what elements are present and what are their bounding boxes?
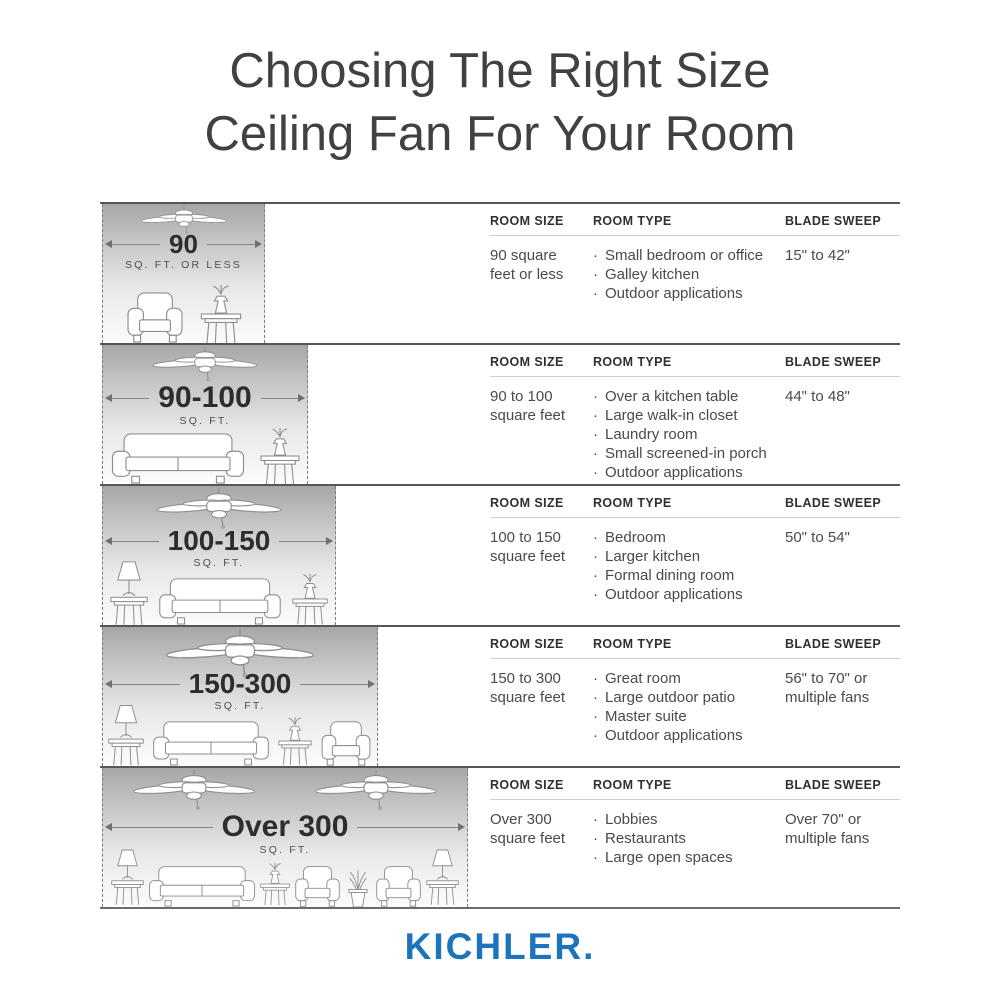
lamp-table-icon: [111, 847, 144, 907]
arrow-right-icon: [458, 823, 465, 831]
sofa-icon: [152, 720, 270, 766]
armchair-icon: [320, 720, 372, 766]
column-header-blade-sweep: BLADE SWEEP: [785, 355, 900, 369]
sofa-icon: [158, 577, 282, 625]
lamp-table-icon: [110, 561, 148, 625]
column-header-room-type: ROOM TYPE: [593, 637, 785, 651]
room-type-item: Formal dining room: [593, 566, 785, 585]
column-header-blade-sweep: BLADE SWEEP: [785, 496, 900, 510]
armchair-icon: [375, 865, 422, 907]
blade-sweep-value: Over 70" or multiple fans: [785, 810, 879, 867]
header-underline: [490, 799, 900, 800]
side-table-icon: [200, 285, 242, 343]
size-label: 90-100: [149, 383, 260, 413]
size-label: 100-150: [159, 527, 280, 555]
room-type-item: Outdoor applications: [593, 585, 785, 604]
arrow-right-icon: [368, 680, 375, 688]
room-type-item: Small bedroom or office: [593, 246, 785, 265]
side-table-icon: [278, 716, 312, 766]
arrow-right-icon: [255, 240, 262, 248]
column-header-room-type: ROOM TYPE: [593, 778, 785, 792]
column-header-room-size: ROOM SIZE: [490, 355, 593, 369]
arrow-left-icon: [105, 680, 112, 688]
room-size-value: 100 to 150 square feet: [490, 528, 584, 604]
width-arrow: 90-100: [103, 383, 307, 413]
ceiling-fan-icon: [130, 770, 258, 814]
column-header-room-type: ROOM TYPE: [593, 355, 785, 369]
ceiling-fan-icon: [312, 770, 440, 814]
room-type-item: Outdoor applications: [593, 463, 785, 482]
info-columns: ROOM SIZE ROOM TYPE BLADE SWEEP 90 squar…: [490, 204, 900, 303]
potted-plant-icon: [345, 869, 371, 907]
arrow-left-icon: [105, 240, 112, 248]
ceiling-fan-icon: [150, 347, 260, 385]
room-type-list: Over a kitchen table Large walk-in close…: [593, 387, 785, 482]
lamp-table-icon: [108, 704, 144, 766]
room-type-item: Master suite: [593, 707, 785, 726]
fan-size-table: 90 SQ. FT. OR LESS ROOM SIZE ROOM TYPE B…: [100, 202, 900, 909]
sofa-icon: [110, 432, 246, 484]
arrow-right-icon: [326, 537, 333, 545]
header-underline: [490, 376, 900, 377]
column-header-room-size: ROOM SIZE: [490, 214, 593, 228]
room-type-item: Great room: [593, 669, 785, 688]
sofa-icon: [148, 865, 256, 907]
column-header-room-size: ROOM SIZE: [490, 496, 593, 510]
room-type-item: Small screened-in porch: [593, 444, 785, 463]
arrow-left-icon: [105, 394, 112, 402]
room-illustration-150-300: 150-300 SQ. FT.: [102, 627, 378, 766]
page-title: Choosing The Right Size Ceiling Fan For …: [0, 0, 1000, 166]
room-illustration-90: 90 SQ. FT. OR LESS: [102, 204, 265, 343]
column-header-blade-sweep: BLADE SWEEP: [785, 778, 900, 792]
column-header-room-size: ROOM SIZE: [490, 637, 593, 651]
room-type-item: Outdoor applications: [593, 284, 785, 303]
armchair-icon: [294, 865, 341, 907]
page-title-line2: Ceiling Fan For Your Room: [0, 103, 1000, 166]
section-90-100-sqft: 90-100 SQ. FT. ROOM SIZE ROOM TYPE BLADE…: [100, 343, 900, 484]
size-label: 150-300: [180, 670, 301, 698]
room-type-item: Over a kitchen table: [593, 387, 785, 406]
arrow-right-icon: [298, 394, 305, 402]
column-header-room-size: ROOM SIZE: [490, 778, 593, 792]
info-columns: ROOM SIZE ROOM TYPE BLADE SWEEP 90 to 10…: [490, 345, 900, 482]
room-size-value: 90 to 100 square feet: [490, 387, 584, 482]
room-illustration-over-300: Over 300 SQ. FT.: [102, 768, 468, 907]
room-type-item: Restaurants: [593, 829, 785, 848]
section-90-sqft: 90 SQ. FT. OR LESS ROOM SIZE ROOM TYPE B…: [100, 202, 900, 343]
section-100-150-sqft: 100-150 SQ. FT. ROOM SIZE ROOM TYPE BLAD…: [100, 484, 900, 625]
room-illustration-90-100: 90-100 SQ. FT.: [102, 345, 308, 484]
blade-sweep-value: 44" to 48": [785, 387, 879, 482]
column-header-room-type: ROOM TYPE: [593, 214, 785, 228]
blade-sweep-value: 15" to 42": [785, 246, 879, 303]
room-size-value: Over 300 square feet: [490, 810, 584, 867]
room-type-list: Great room Large outdoor patio Master su…: [593, 669, 785, 745]
room-type-item: Lobbies: [593, 810, 785, 829]
room-type-item: Larger kitchen: [593, 547, 785, 566]
header-underline: [490, 517, 900, 518]
size-label: Over 300: [213, 812, 358, 842]
room-type-item: Large open spaces: [593, 848, 785, 867]
side-table-icon: [292, 573, 328, 625]
width-arrow: 150-300: [103, 670, 377, 698]
width-arrow: 90: [103, 231, 264, 257]
width-arrow: 100-150: [103, 527, 335, 555]
room-type-item: Large outdoor patio: [593, 688, 785, 707]
size-label: 90: [160, 231, 207, 257]
size-unit: SQ. FT.: [103, 415, 307, 427]
info-columns: ROOM SIZE ROOM TYPE BLADE SWEEP Over 300…: [490, 768, 900, 867]
room-size-value: 90 square feet or less: [490, 246, 584, 303]
arrow-left-icon: [105, 537, 112, 545]
armchair-icon: [126, 291, 184, 343]
column-header-room-type: ROOM TYPE: [593, 496, 785, 510]
room-type-item: Outdoor applications: [593, 726, 785, 745]
room-type-item: Large walk-in closet: [593, 406, 785, 425]
section-over-300-sqft: Over 300 SQ. FT. ROOM SIZE ROOM TYPE BLA…: [100, 766, 900, 907]
lamp-table-icon: [426, 847, 459, 907]
room-illustration-100-150: 100-150 SQ. FT.: [102, 486, 336, 625]
width-arrow: Over 300: [103, 812, 467, 842]
brand-logo: KICHLER.: [0, 926, 1000, 968]
room-type-item: Galley kitchen: [593, 265, 785, 284]
blade-sweep-value: 50" to 54": [785, 528, 879, 604]
room-type-list: Lobbies Restaurants Large open spaces: [593, 810, 785, 867]
header-underline: [490, 658, 900, 659]
info-columns: ROOM SIZE ROOM TYPE BLADE SWEEP 150 to 3…: [490, 627, 900, 745]
blade-sweep-value: 56" to 70" or multiple fans: [785, 669, 879, 745]
side-table-icon: [260, 861, 290, 907]
side-table-icon: [260, 428, 300, 484]
info-columns: ROOM SIZE ROOM TYPE BLADE SWEEP 100 to 1…: [490, 486, 900, 604]
page-title-line1: Choosing The Right Size: [0, 40, 1000, 103]
column-header-blade-sweep: BLADE SWEEP: [785, 214, 900, 228]
arrow-left-icon: [105, 823, 112, 831]
header-underline: [490, 235, 900, 236]
room-type-list: Small bedroom or office Galley kitchen O…: [593, 246, 785, 303]
column-header-blade-sweep: BLADE SWEEP: [785, 637, 900, 651]
size-unit: SQ. FT. OR LESS: [103, 259, 264, 271]
room-type-item: Laundry room: [593, 425, 785, 444]
section-150-300-sqft: 150-300 SQ. FT. ROOM SIZE ROOM TYPE BLAD…: [100, 625, 900, 766]
room-type-list: Bedroom Larger kitchen Formal dining roo…: [593, 528, 785, 604]
room-size-value: 150 to 300 square feet: [490, 669, 584, 745]
room-type-item: Bedroom: [593, 528, 785, 547]
